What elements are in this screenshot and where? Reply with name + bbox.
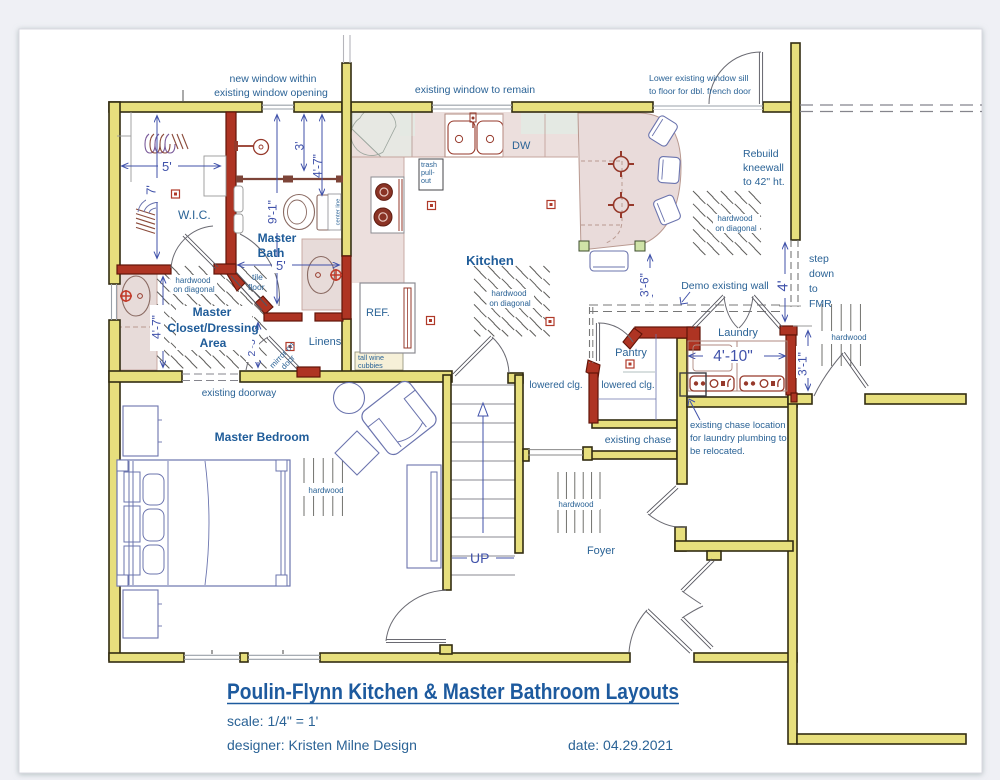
svg-text:hardwood: hardwood — [717, 214, 752, 223]
svg-text:hardwood: hardwood — [491, 289, 526, 298]
svg-text:Foyer: Foyer — [587, 545, 615, 557]
svg-text:4'-7": 4'-7" — [310, 154, 324, 178]
svg-text:4'-7": 4'-7" — [149, 315, 163, 339]
svg-text:hardwood: hardwood — [831, 333, 866, 342]
svg-text:Master: Master — [193, 305, 232, 319]
svg-text:floor: floor — [248, 282, 265, 292]
svg-text:Demo existing wall: Demo existing wall — [681, 280, 769, 292]
svg-text:down: down — [809, 268, 834, 280]
svg-text:4'-10": 4'-10" — [713, 348, 752, 365]
svg-text:FMR: FMR — [809, 298, 832, 310]
svg-text:4': 4' — [774, 280, 791, 291]
svg-text:3': 3' — [292, 142, 306, 151]
svg-text:Rebuild: Rebuild — [743, 148, 779, 160]
svg-text:on diagonal: on diagonal — [715, 224, 757, 233]
svg-text:existing window to remain: existing window to remain — [415, 84, 535, 96]
svg-text:REF.: REF. — [366, 307, 390, 319]
svg-text:Linens: Linens — [309, 336, 342, 348]
svg-text:date: 04.29.2021: date: 04.29.2021 — [568, 737, 673, 753]
svg-text:lowered clg.: lowered clg. — [529, 380, 582, 391]
svg-text:Bath: Bath — [258, 246, 285, 260]
svg-text:cubbies: cubbies — [358, 361, 383, 370]
svg-text:Closet/Dressing: Closet/Dressing — [167, 321, 258, 335]
svg-text:kneewall: kneewall — [743, 162, 784, 174]
svg-text:3'-6": 3'-6" — [637, 273, 651, 297]
svg-text:tile: tile — [252, 272, 263, 282]
svg-text:Pantry: Pantry — [615, 347, 647, 359]
svg-text:UP: UP — [470, 550, 489, 566]
svg-text:Area: Area — [200, 336, 227, 350]
svg-text:to 42" ht.: to 42" ht. — [743, 176, 785, 188]
svg-text:center line: center line — [336, 199, 342, 226]
svg-text:on diagonal: on diagonal — [173, 285, 215, 294]
svg-text:hardwood: hardwood — [558, 500, 593, 509]
svg-text:Lower existing window sill: Lower existing window sill — [649, 73, 749, 83]
svg-text:3'-1": 3'-1" — [795, 352, 809, 376]
svg-text:lowered clg.: lowered clg. — [601, 380, 654, 391]
svg-text:5': 5' — [162, 159, 172, 174]
svg-text:be relocated.: be relocated. — [690, 446, 745, 457]
svg-text:7': 7' — [144, 185, 159, 195]
svg-text:5': 5' — [276, 258, 286, 273]
svg-text:step: step — [809, 253, 829, 265]
svg-text:Master: Master — [258, 231, 297, 245]
svg-text:existing chase: existing chase — [605, 434, 672, 446]
svg-text:on diagonal: on diagonal — [489, 299, 531, 308]
svg-text:hardwood: hardwood — [308, 486, 343, 495]
svg-text:for laundry plumbing to: for laundry plumbing to — [690, 433, 787, 444]
svg-text:to floor for dbl. french door: to floor for dbl. french door — [649, 86, 751, 96]
svg-text:scale: 1/4" = 1': scale: 1/4" = 1' — [227, 713, 318, 729]
svg-text:Kitchen: Kitchen — [466, 253, 514, 268]
svg-text:existing chase location: existing chase location — [690, 420, 786, 431]
svg-text:designer: Kristen Milne Design: designer: Kristen Milne Design — [227, 737, 417, 753]
svg-text:W.I.C.: W.I.C. — [178, 208, 211, 222]
svg-text:to: to — [809, 283, 818, 295]
svg-text:Laundry: Laundry — [718, 327, 758, 339]
svg-text:9'-1": 9'-1" — [265, 200, 279, 224]
svg-text:hardwood: hardwood — [175, 276, 210, 285]
svg-text:existing doorway: existing doorway — [202, 388, 276, 399]
svg-text:Master Bedroom: Master Bedroom — [215, 430, 310, 444]
svg-text:new window within: new window within — [230, 73, 317, 85]
svg-text:Poulin-Flynn Kitchen & Master: Poulin-Flynn Kitchen & Master Bathroom L… — [227, 679, 679, 704]
svg-text:DW: DW — [512, 140, 531, 152]
svg-text:out: out — [421, 176, 431, 185]
svg-text:existing window opening: existing window opening — [214, 87, 328, 99]
